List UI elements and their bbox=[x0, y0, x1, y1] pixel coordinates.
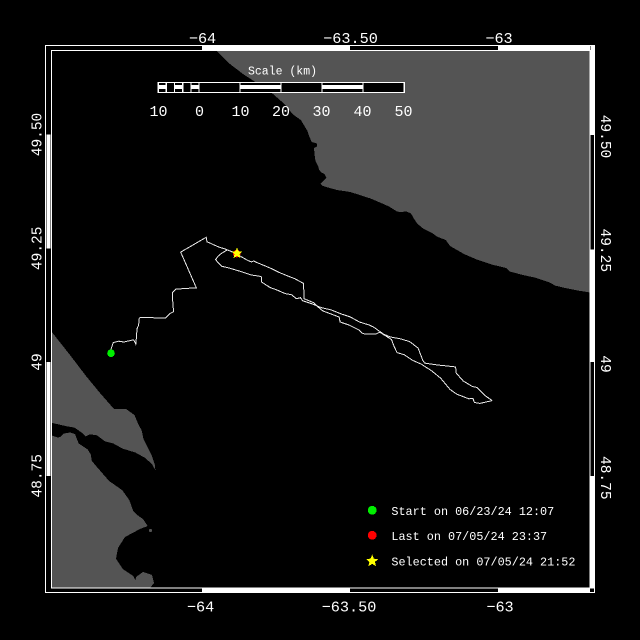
svg-text:49.50: 49.50 bbox=[596, 115, 612, 159]
svg-text:49.25: 49.25 bbox=[596, 229, 612, 273]
svg-text:10: 10 bbox=[231, 104, 249, 121]
svg-text:−63.50: −63.50 bbox=[322, 599, 377, 617]
svg-text:49: 49 bbox=[31, 353, 47, 370]
svg-text:0: 0 bbox=[195, 104, 204, 121]
svg-text:49: 49 bbox=[596, 355, 612, 372]
svg-text:−63.50: −63.50 bbox=[323, 30, 378, 48]
svg-text:50: 50 bbox=[394, 104, 412, 121]
svg-text:40: 40 bbox=[353, 104, 371, 121]
svg-text:49.25: 49.25 bbox=[31, 227, 47, 271]
svg-text:30: 30 bbox=[312, 104, 330, 121]
svg-text:Start on 06/23/24 12:07: Start on 06/23/24 12:07 bbox=[391, 505, 554, 519]
svg-text:Selected on 07/05/24 21:52: Selected on 07/05/24 21:52 bbox=[391, 556, 575, 570]
svg-text:20: 20 bbox=[272, 104, 290, 121]
svg-text:48.75: 48.75 bbox=[596, 456, 612, 500]
svg-text:−63: −63 bbox=[486, 599, 513, 617]
svg-text:10: 10 bbox=[149, 104, 167, 121]
svg-text:−64: −64 bbox=[187, 599, 214, 617]
svg-text:48.75: 48.75 bbox=[31, 454, 47, 498]
svg-text:−64: −64 bbox=[189, 30, 216, 48]
svg-text:Last on 07/05/24 23:37: Last on 07/05/24 23:37 bbox=[391, 530, 547, 544]
svg-text:Scale (km): Scale (km) bbox=[248, 66, 317, 79]
svg-text:−63: −63 bbox=[485, 30, 512, 48]
svg-text:49.50: 49.50 bbox=[31, 113, 47, 157]
